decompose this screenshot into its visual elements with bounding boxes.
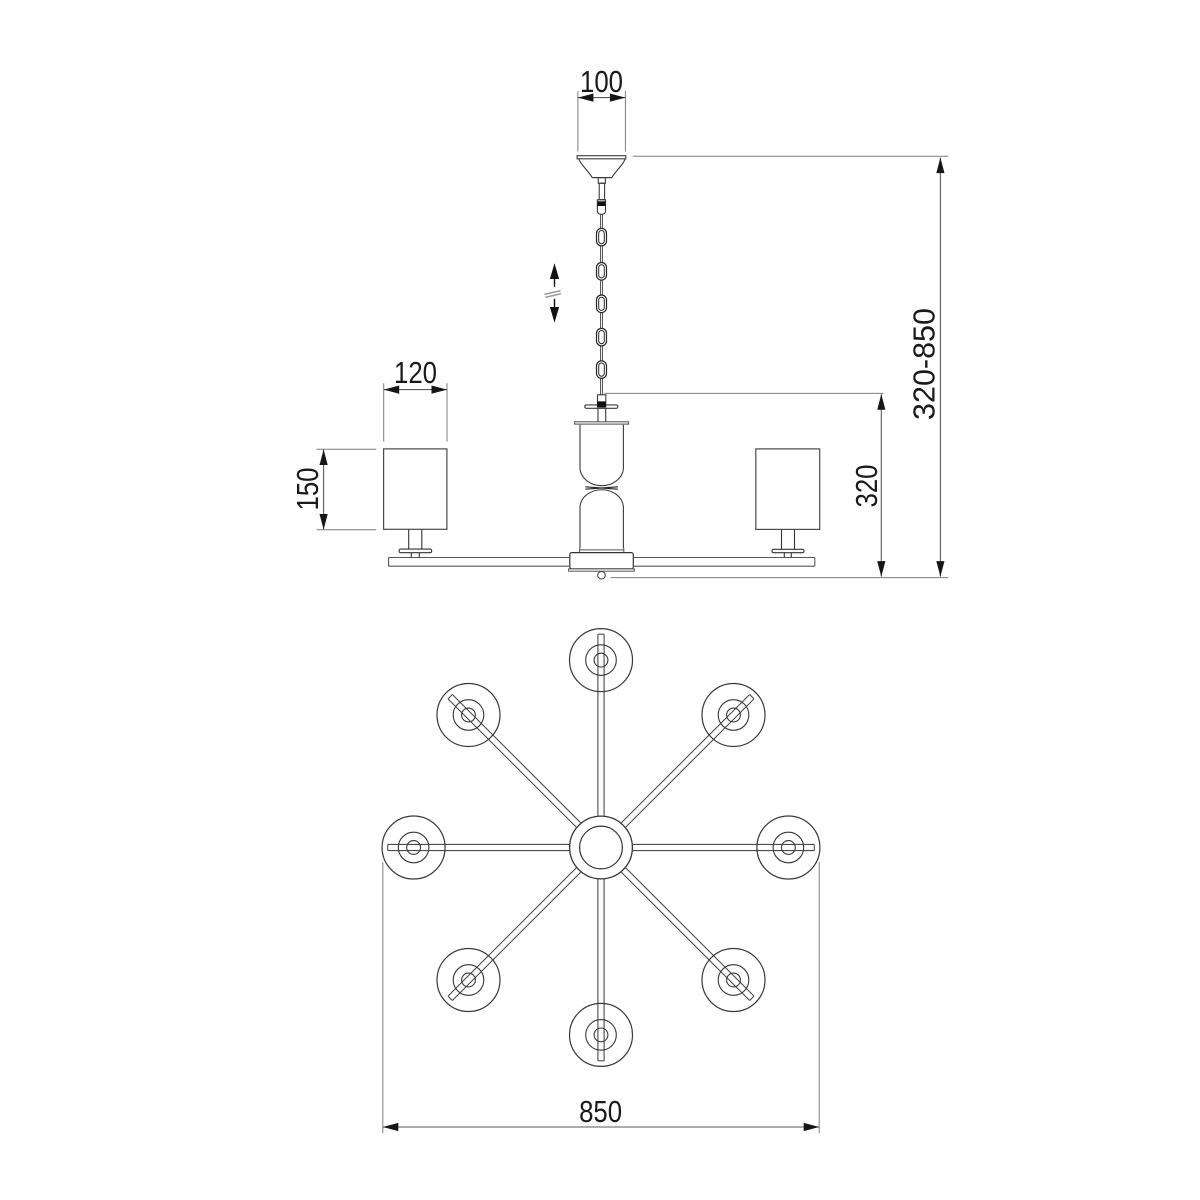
svg-text:120: 120 <box>394 355 437 390</box>
svg-text:850: 850 <box>579 1094 622 1129</box>
svg-text:320: 320 <box>849 465 884 508</box>
svg-text:100: 100 <box>580 64 623 99</box>
svg-text:320-850: 320-850 <box>906 308 941 420</box>
svg-text:150: 150 <box>290 468 325 511</box>
